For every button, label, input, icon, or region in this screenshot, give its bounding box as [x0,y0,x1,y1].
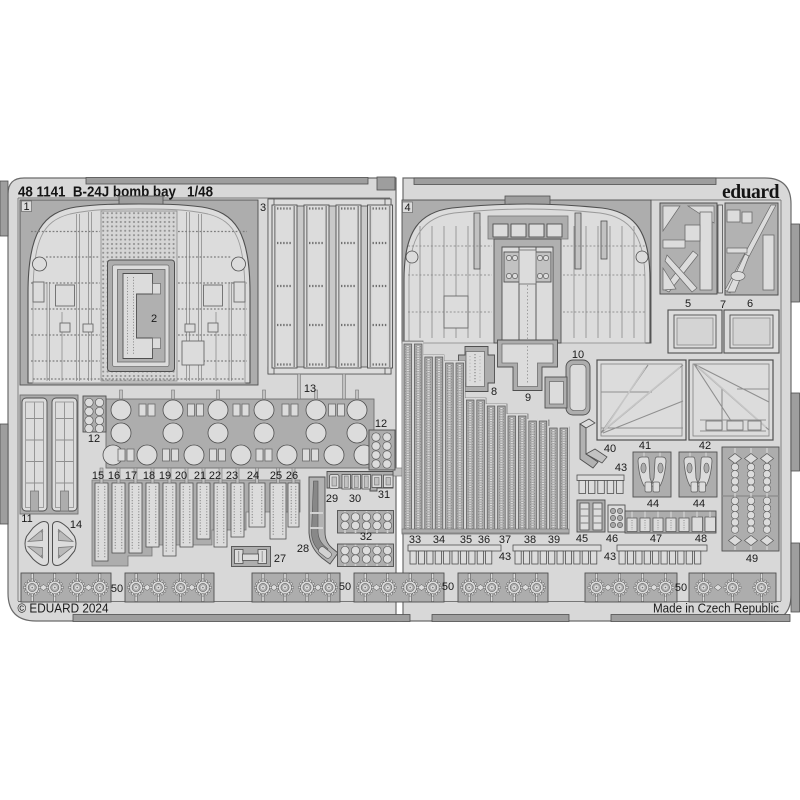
svg-text:eduard: eduard [722,181,779,203]
svg-text:28: 28 [297,543,309,555]
svg-text:29: 29 [326,493,338,505]
svg-text:4: 4 [404,202,410,214]
svg-text:1: 1 [23,201,29,213]
svg-text:32: 32 [360,531,372,543]
svg-text:15: 15 [92,470,104,482]
svg-text:36: 36 [478,534,490,546]
svg-text:44: 44 [647,498,659,510]
svg-text:11: 11 [21,513,32,525]
svg-text:41: 41 [639,440,651,452]
svg-text:20: 20 [175,470,187,482]
svg-text:50: 50 [111,583,123,595]
svg-text:46: 46 [606,533,618,545]
svg-text:12: 12 [375,418,387,430]
svg-text:48: 48 [695,533,707,545]
svg-text:26: 26 [286,470,298,482]
svg-text:17: 17 [125,470,137,482]
svg-text:43: 43 [615,462,627,474]
svg-text:24: 24 [247,470,259,482]
svg-text:38: 38 [524,534,536,546]
svg-text:23: 23 [226,470,238,482]
svg-text:Made in Czech Republic: Made in Czech Republic [653,601,779,616]
svg-text:48 1141 B-24J bomb bay 1/48: 48 1141 B-24J bomb bay 1/48 [18,184,213,201]
svg-text:50: 50 [339,581,351,593]
svg-text:40: 40 [604,443,616,455]
svg-text:© EDUARD 2024: © EDUARD 2024 [18,602,109,616]
svg-text:35: 35 [460,534,472,546]
svg-text:45: 45 [576,533,588,545]
svg-text:30: 30 [349,493,361,505]
svg-text:21: 21 [194,470,206,482]
svg-text:33: 33 [409,534,421,546]
svg-text:22: 22 [209,470,221,482]
svg-text:13: 13 [304,383,316,395]
svg-text:47: 47 [650,533,662,545]
svg-text:44: 44 [693,498,705,510]
svg-text:19: 19 [159,470,171,482]
svg-text:49: 49 [746,553,758,565]
svg-text:16: 16 [108,470,120,482]
svg-text:9: 9 [525,392,531,404]
svg-text:10: 10 [572,349,584,361]
svg-text:43: 43 [604,551,616,563]
svg-text:7: 7 [720,299,726,311]
svg-text:14: 14 [70,519,82,531]
svg-text:27: 27 [274,553,286,565]
svg-text:2: 2 [151,313,157,325]
svg-text:6: 6 [747,298,753,310]
svg-text:5: 5 [685,298,691,310]
svg-text:50: 50 [442,581,454,593]
svg-text:39: 39 [548,534,560,546]
svg-text:43: 43 [499,551,511,563]
svg-text:25: 25 [270,470,282,482]
svg-text:3: 3 [260,202,266,214]
svg-text:42: 42 [699,440,711,452]
svg-text:8: 8 [491,386,497,398]
svg-text:18: 18 [143,470,155,482]
svg-text:31: 31 [378,489,390,501]
svg-text:12: 12 [88,433,100,445]
svg-text:34: 34 [433,534,445,546]
svg-text:50: 50 [675,582,687,594]
svg-text:37: 37 [499,534,511,546]
